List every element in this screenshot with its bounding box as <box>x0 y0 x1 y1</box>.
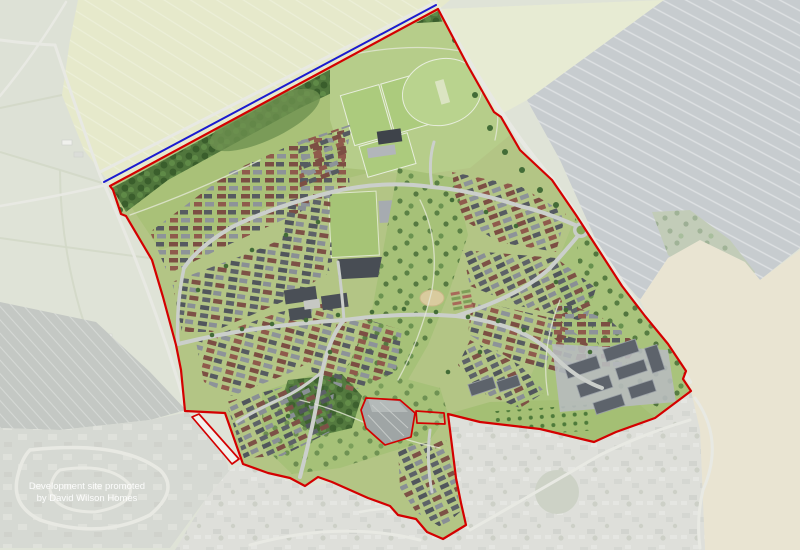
caption-line-1: Development site promoted <box>24 481 150 493</box>
masterplan-aerial-map: Development site promoted by David Wilso… <box>0 0 800 550</box>
caption-line-2: by David Wilson Homes <box>24 493 150 505</box>
map-canvas <box>0 0 800 550</box>
caption: Development site promoted by David Wilso… <box>24 481 150 504</box>
quarry-annex-red <box>416 411 445 424</box>
